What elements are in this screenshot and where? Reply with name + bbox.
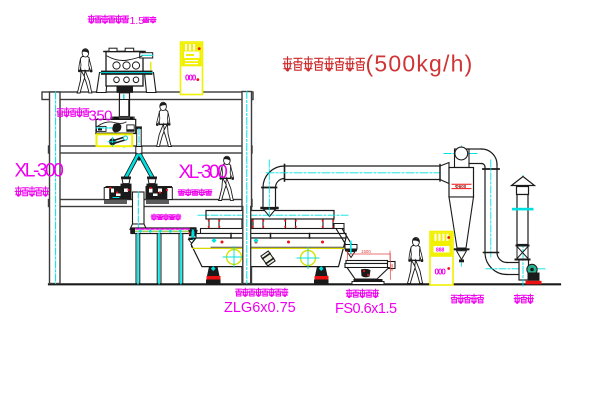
svg-text:XL-300: XL-300 [15, 161, 64, 182]
svg-text:350: 350 [89, 108, 113, 125]
svg-text:XL-300: XL-300 [179, 162, 228, 183]
svg-text:FS0.6x1.5: FS0.6x1.5 [335, 301, 397, 317]
svg-text:ZLG6x0.75: ZLG6x0.75 [224, 300, 296, 316]
svg-text:000: 000 [185, 74, 197, 83]
svg-text:Φ600: Φ600 [455, 184, 467, 189]
svg-text:540: 540 [389, 263, 394, 271]
svg-text:1500: 1500 [361, 249, 371, 254]
svg-text:1.5: 1.5 [130, 15, 145, 27]
svg-text:888: 888 [436, 248, 445, 254]
svg-text:000: 000 [435, 268, 447, 277]
svg-text:(500kg/h): (500kg/h) [366, 51, 474, 77]
